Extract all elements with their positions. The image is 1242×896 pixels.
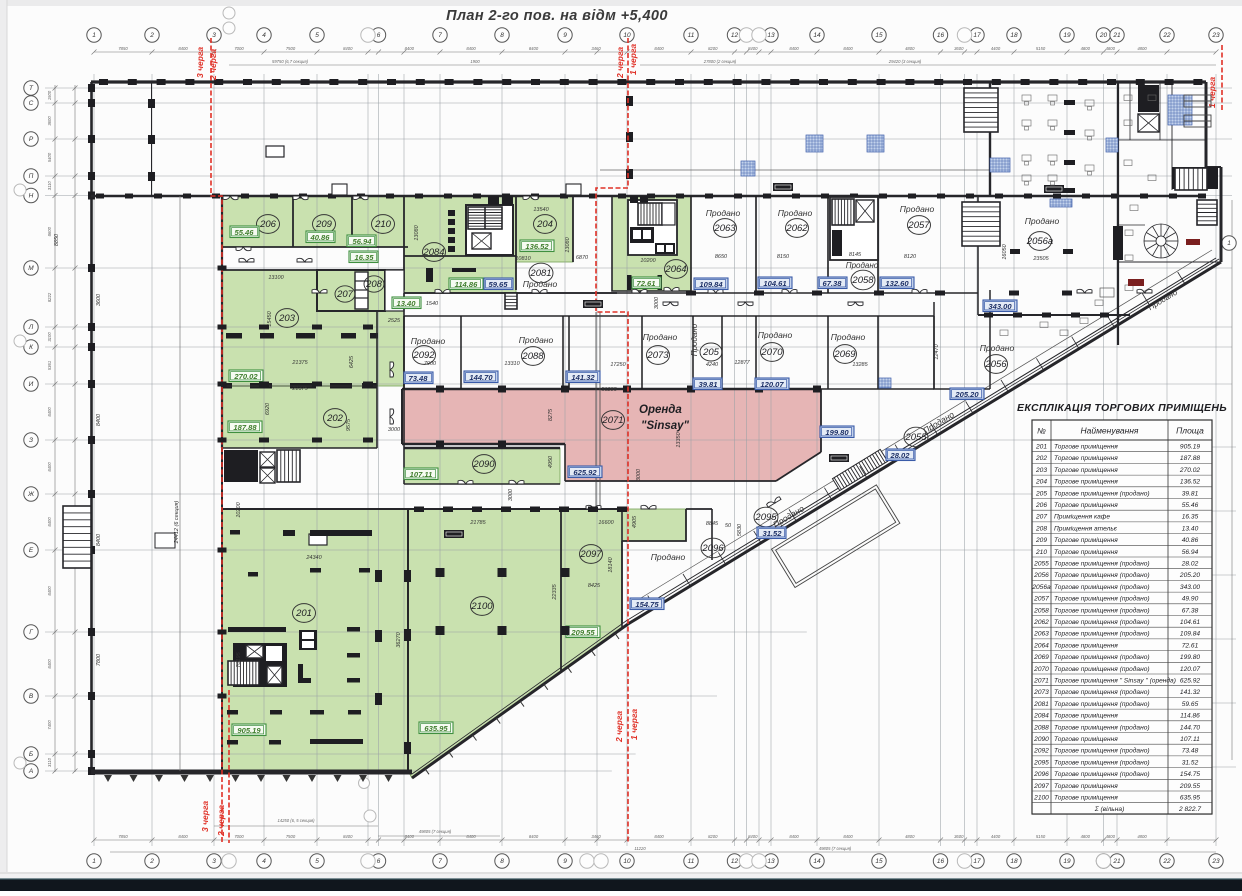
svg-text:12470: 12470	[934, 343, 940, 359]
svg-text:343.00: 343.00	[988, 302, 1012, 311]
svg-text:Продано: Продано	[690, 323, 699, 356]
svg-text:10: 10	[623, 858, 631, 865]
svg-text:12: 12	[731, 858, 739, 865]
svg-text:Торгове приміщення (продано): Торгове приміщення (продано)	[1054, 700, 1150, 708]
svg-text:5150: 5150	[1036, 46, 1046, 51]
svg-text:8145: 8145	[849, 252, 862, 258]
svg-text:2 черга: 2 черга	[208, 49, 218, 81]
svg-text:2064: 2064	[1033, 642, 1049, 649]
svg-text:4800: 4800	[1081, 834, 1091, 839]
svg-text:17: 17	[973, 32, 981, 39]
svg-text:8400: 8400	[789, 46, 799, 51]
svg-text:22: 22	[1162, 32, 1171, 39]
svg-text:13080: 13080	[414, 224, 420, 240]
svg-text:19: 19	[1063, 858, 1071, 865]
svg-text:4400: 4400	[991, 834, 1001, 839]
svg-text:4905: 4905	[632, 515, 638, 528]
svg-text:2084: 2084	[1033, 713, 1049, 720]
svg-text:132.60: 132.60	[885, 279, 909, 288]
svg-text:10810: 10810	[515, 256, 531, 262]
svg-text:7850: 7850	[118, 834, 128, 839]
svg-text:8400: 8400	[405, 834, 415, 839]
svg-text:120.07: 120.07	[760, 380, 784, 389]
svg-text:199.80: 199.80	[1180, 654, 1201, 661]
svg-text:В: В	[29, 693, 34, 700]
svg-text:18: 18	[1010, 858, 1018, 865]
svg-text:Торгове приміщення: Торгове приміщення	[1054, 501, 1118, 509]
svg-text:7500: 7500	[286, 46, 296, 51]
svg-text:2 черга: 2 черга	[614, 711, 624, 743]
svg-text:1: 1	[92, 858, 96, 865]
svg-text:144.70: 144.70	[1180, 724, 1201, 731]
svg-text:Торгове приміщення (продано): Торгове приміщення (продано)	[1054, 758, 1150, 766]
svg-text:11: 11	[688, 32, 695, 39]
svg-text:16.35: 16.35	[354, 253, 374, 262]
svg-text:8650: 8650	[715, 254, 728, 260]
svg-text:А: А	[28, 768, 33, 775]
svg-text:8400: 8400	[343, 834, 353, 839]
svg-text:12: 12	[731, 32, 739, 39]
svg-text:343.00: 343.00	[1180, 584, 1201, 591]
svg-text:6425: 6425	[349, 355, 355, 368]
svg-text:13.40: 13.40	[1182, 525, 1199, 532]
svg-text:2097: 2097	[579, 549, 602, 560]
svg-text:2071: 2071	[601, 415, 623, 426]
svg-text:4950: 4950	[548, 455, 554, 468]
svg-text:8600: 8600	[47, 226, 52, 236]
svg-text:7500: 7500	[286, 834, 296, 839]
svg-text:Р: Р	[29, 136, 34, 143]
svg-text:270.02: 270.02	[1179, 467, 1201, 474]
svg-text:8400: 8400	[843, 46, 853, 51]
svg-text:5150: 5150	[1036, 834, 1046, 839]
svg-text:29420 (3 секция): 29420 (3 секция)	[888, 59, 922, 64]
svg-text:1540: 1540	[426, 301, 439, 307]
svg-text:2055: 2055	[904, 432, 927, 443]
svg-text:8400: 8400	[466, 46, 476, 51]
svg-text:4800: 4800	[905, 46, 915, 51]
svg-text:204: 204	[536, 219, 553, 230]
svg-text:Торгове приміщення (продано): Торгове приміщення (продано)	[1054, 747, 1150, 755]
svg-text:Продано: Продано	[778, 208, 813, 218]
svg-text:2057: 2057	[1033, 596, 1049, 603]
svg-text:209.55: 209.55	[570, 628, 595, 637]
svg-text:21: 21	[1112, 858, 1121, 865]
svg-text:205.20: 205.20	[954, 390, 979, 399]
svg-text:10200: 10200	[236, 501, 242, 517]
svg-text:13.40: 13.40	[396, 299, 416, 308]
svg-text:Площа: Площа	[1176, 426, 1204, 436]
svg-text:207: 207	[1035, 514, 1047, 521]
svg-text:15: 15	[875, 32, 883, 39]
svg-text:73.48: 73.48	[1182, 748, 1199, 755]
svg-text:3000: 3000	[388, 427, 401, 433]
svg-text:Торгове приміщення: Торгове приміщення	[1054, 735, 1118, 743]
svg-text:3000: 3000	[654, 296, 660, 309]
svg-text:Г: Г	[29, 629, 33, 636]
svg-text:2071: 2071	[1033, 678, 1049, 685]
svg-text:Продано: Продано	[651, 552, 686, 562]
svg-text:План 2-го пов. на відм +5,400: План 2-го пов. на відм +5,400	[446, 8, 668, 24]
svg-text:Торгове приміщення " Sinsay ": Торгове приміщення " Sinsay " (оренда)	[1054, 677, 1176, 685]
svg-text:8200: 8200	[708, 834, 718, 839]
svg-text:2063: 2063	[713, 223, 736, 234]
svg-text:17: 17	[973, 858, 981, 865]
svg-text:154.75: 154.75	[635, 600, 659, 609]
svg-text:27800 (2 секция): 27800 (2 секция)	[703, 59, 737, 64]
svg-text:2: 2	[149, 858, 154, 865]
svg-text:8400: 8400	[47, 659, 52, 669]
svg-text:209: 209	[315, 219, 333, 230]
svg-text:270.02: 270.02	[233, 372, 258, 381]
svg-text:Торгове приміщення: Торгове приміщення	[1054, 443, 1118, 451]
svg-text:8222: 8222	[47, 292, 52, 302]
svg-text:201: 201	[295, 608, 312, 619]
svg-text:Продано: Продано	[1025, 216, 1060, 226]
svg-text:Торгове приміщення (продано): Торгове приміщення (продано)	[1054, 630, 1150, 638]
svg-text:109.84: 109.84	[699, 280, 723, 289]
svg-text:2064: 2064	[664, 264, 686, 275]
svg-text:17250: 17250	[610, 362, 626, 368]
svg-text:7: 7	[438, 32, 442, 39]
svg-text:154.75: 154.75	[1180, 771, 1201, 778]
svg-text:Торгове приміщення: Торгове приміщення	[1054, 536, 1118, 544]
svg-text:3100: 3100	[47, 332, 52, 342]
svg-text:2062: 2062	[1033, 619, 1049, 626]
svg-text:21: 21	[1112, 32, 1121, 39]
svg-text:210: 210	[1035, 549, 1047, 556]
svg-text:7000: 7000	[234, 834, 244, 839]
svg-text:3000: 3000	[508, 488, 514, 501]
svg-text:2: 2	[149, 32, 154, 39]
svg-text:8200: 8200	[708, 46, 718, 51]
svg-text:4240: 4240	[706, 362, 719, 368]
svg-text:1: 1	[1227, 240, 1231, 247]
svg-text:Торгове приміщення: Торгове приміщення	[1054, 454, 1118, 462]
svg-text:23505: 23505	[1032, 256, 1049, 262]
svg-text:16050: 16050	[1002, 243, 1008, 259]
svg-text:28.02: 28.02	[889, 451, 910, 460]
svg-text:Продано: Продано	[846, 261, 879, 270]
svg-text:7900: 7900	[424, 361, 437, 367]
svg-text:55.46: 55.46	[1182, 502, 1199, 509]
svg-text:14: 14	[813, 32, 821, 39]
svg-text:З: З	[29, 437, 33, 444]
svg-text:203: 203	[278, 313, 296, 324]
svg-text:Торгове приміщення (продано): Торгове приміщення (продано)	[1054, 571, 1150, 579]
svg-text:Л: Л	[28, 324, 34, 331]
svg-text:Найменування: Найменування	[1081, 426, 1139, 436]
svg-text:50: 50	[725, 523, 732, 529]
svg-text:11220: 11220	[634, 846, 646, 851]
svg-text:18140: 18140	[608, 556, 614, 572]
svg-text:Торгове приміщення: Торгове приміщення	[1054, 782, 1118, 790]
svg-text:3110: 3110	[47, 757, 52, 767]
svg-text:2070: 2070	[1033, 666, 1049, 673]
svg-text:21375: 21375	[291, 360, 308, 366]
svg-text:2100: 2100	[470, 601, 493, 612]
svg-text:8400: 8400	[47, 586, 52, 596]
svg-text:4800: 4800	[905, 834, 915, 839]
svg-text:8400: 8400	[96, 533, 102, 546]
svg-text:4: 4	[262, 858, 266, 865]
svg-text:203: 203	[1035, 467, 1047, 474]
svg-text:3600: 3600	[954, 46, 964, 51]
svg-text:2088: 2088	[1033, 724, 1049, 731]
svg-text:2062: 2062	[785, 223, 808, 234]
svg-text:205.20: 205.20	[1179, 572, 1201, 579]
svg-text:56.94: 56.94	[352, 237, 372, 246]
svg-text:2095: 2095	[1033, 759, 1049, 766]
svg-text:6: 6	[377, 32, 381, 39]
svg-text:2073: 2073	[646, 350, 669, 361]
svg-text:2073: 2073	[1033, 689, 1049, 696]
svg-text:204: 204	[1035, 479, 1047, 486]
svg-text:209.55: 209.55	[1179, 783, 1201, 790]
svg-text:635.95: 635.95	[424, 724, 448, 733]
svg-text:625.92: 625.92	[573, 468, 597, 477]
svg-text:13285: 13285	[852, 362, 868, 368]
svg-text:4800: 4800	[1081, 46, 1091, 51]
svg-text:36270: 36270	[396, 631, 402, 647]
svg-text:201: 201	[1035, 444, 1047, 451]
svg-text:209: 209	[1035, 537, 1047, 544]
svg-text:2092: 2092	[1033, 748, 1049, 755]
svg-text:Торгове приміщення (продано): Торгове приміщення (продано)	[1054, 688, 1150, 696]
svg-text:72.61: 72.61	[636, 279, 655, 288]
svg-text:П: П	[29, 173, 34, 180]
svg-text:Торгове приміщення: Торгове приміщення	[1054, 466, 1118, 474]
svg-text:208: 208	[1035, 525, 1047, 532]
svg-text:2058: 2058	[1033, 607, 1049, 614]
svg-text:24340: 24340	[305, 555, 322, 561]
svg-text:8400: 8400	[748, 46, 758, 51]
svg-text:31.52: 31.52	[1182, 759, 1199, 766]
svg-text:625.92: 625.92	[1180, 678, 1201, 685]
svg-text:3460: 3460	[591, 834, 601, 839]
svg-text:21375: 21375	[291, 386, 308, 392]
svg-text:141.32: 141.32	[1180, 689, 1201, 696]
svg-text:199.80: 199.80	[825, 428, 849, 437]
svg-text:2055: 2055	[1033, 561, 1049, 568]
svg-text:2081: 2081	[529, 268, 551, 279]
svg-text:7: 7	[438, 858, 442, 865]
svg-text:Продано: Продано	[980, 343, 1015, 353]
svg-text:56.94: 56.94	[1182, 549, 1199, 556]
svg-text:Торгове приміщення: Торгове приміщення	[1054, 794, 1118, 802]
svg-text:31.52: 31.52	[762, 529, 782, 538]
svg-text:Б: Б	[29, 751, 33, 758]
svg-text:Приміщення кафе: Приміщення кафе	[1054, 513, 1110, 521]
svg-text:13310: 13310	[504, 361, 520, 367]
svg-text:2 черга: 2 черга	[216, 805, 226, 837]
svg-text:202: 202	[326, 413, 344, 424]
svg-text:Торгове приміщення (продано): Торгове приміщення (продано)	[1054, 583, 1150, 591]
svg-text:5: 5	[315, 32, 319, 39]
svg-text:22335: 22335	[552, 583, 558, 600]
svg-text:2096: 2096	[701, 543, 724, 554]
svg-text:Е: Е	[29, 547, 34, 554]
svg-text:Продано: Продано	[519, 335, 554, 345]
svg-text:2056а: 2056а	[1031, 584, 1051, 591]
svg-text:2090: 2090	[1033, 736, 1049, 743]
svg-text:1 черга: 1 черга	[628, 44, 638, 75]
svg-text:Торгове приміщення: Торгове приміщення	[1054, 641, 1118, 649]
svg-text:55.46: 55.46	[234, 228, 254, 237]
svg-text:3 черга: 3 черга	[195, 47, 205, 78]
svg-text:8400: 8400	[47, 407, 52, 417]
svg-text:Приміщення ательє: Приміщення ательє	[1054, 524, 1118, 532]
svg-text:6870: 6870	[576, 255, 589, 261]
svg-text:20: 20	[1099, 32, 1108, 39]
svg-text:14: 14	[813, 858, 821, 865]
svg-text:16: 16	[937, 858, 945, 865]
svg-text:5361: 5361	[47, 361, 52, 370]
svg-text:Торгове приміщення (продано): Торгове приміщення (продано)	[1054, 770, 1150, 778]
svg-text:Торгове приміщення (продано): Торгове приміщення (продано)	[1054, 653, 1150, 661]
svg-text:56285: 56285	[601, 387, 617, 393]
svg-text:13: 13	[767, 858, 775, 865]
svg-text:5400: 5400	[47, 152, 52, 162]
svg-text:Торгове приміщення: Торгове приміщення	[1054, 478, 1118, 486]
svg-text:207: 207	[336, 289, 354, 300]
svg-text:8400: 8400	[529, 834, 539, 839]
svg-text:Продано: Продано	[831, 332, 866, 342]
svg-text:2070: 2070	[760, 347, 783, 358]
svg-text:104.61: 104.61	[763, 279, 786, 288]
svg-text:16: 16	[937, 32, 945, 39]
svg-text:67.38: 67.38	[1182, 607, 1199, 614]
svg-text:9: 9	[563, 32, 567, 39]
svg-text:Торгове приміщення: Торгове приміщення	[1054, 548, 1118, 556]
svg-text:6: 6	[377, 858, 381, 865]
svg-text:208: 208	[365, 279, 383, 290]
svg-text:15: 15	[875, 858, 883, 865]
svg-text:202: 202	[1035, 455, 1047, 462]
svg-text:"Sinsay": "Sinsay"	[641, 420, 690, 432]
svg-text:8850: 8850	[54, 233, 60, 246]
svg-text:7400: 7400	[47, 720, 52, 730]
svg-text:Продано: Продано	[523, 279, 558, 289]
svg-text:8845: 8845	[706, 521, 719, 527]
svg-text:120.07: 120.07	[1180, 666, 1201, 673]
svg-text:39.81: 39.81	[1182, 490, 1199, 497]
svg-text:Продано: Продано	[758, 330, 793, 340]
svg-text:206: 206	[259, 219, 277, 230]
svg-text:8400: 8400	[654, 46, 664, 51]
svg-text:Торгове приміщення (продано): Торгове приміщення (продано)	[1054, 489, 1150, 497]
svg-text:3600: 3600	[96, 293, 102, 306]
svg-text:1900: 1900	[470, 59, 480, 64]
svg-text:8400: 8400	[789, 834, 799, 839]
svg-text:Н: Н	[29, 193, 34, 200]
svg-text:21785: 21785	[469, 520, 486, 526]
svg-text:7850: 7850	[118, 46, 128, 51]
svg-text:39.81: 39.81	[698, 380, 717, 389]
svg-text:7800: 7800	[96, 653, 102, 666]
svg-text:3600: 3600	[954, 834, 964, 839]
svg-text:109.84: 109.84	[1180, 631, 1201, 638]
svg-text:Торгове приміщення: Торгове приміщення	[1054, 712, 1118, 720]
svg-text:Торгове приміщення (продано): Торгове приміщення (продано)	[1054, 595, 1150, 603]
svg-text:2097: 2097	[1033, 783, 1049, 790]
svg-text:2069: 2069	[833, 349, 856, 360]
svg-text:2058: 2058	[851, 275, 874, 286]
svg-text:1 черга: 1 черга	[1207, 77, 1217, 108]
svg-text:8400: 8400	[178, 834, 188, 839]
svg-text:16.35: 16.35	[1182, 514, 1199, 521]
svg-text:Оренда: Оренда	[639, 404, 682, 416]
svg-text:144.70: 144.70	[469, 373, 493, 382]
svg-text:И: И	[29, 381, 34, 388]
svg-text:59.65: 59.65	[1182, 701, 1199, 708]
svg-text:22: 22	[1162, 858, 1171, 865]
svg-text:28.02: 28.02	[1181, 561, 1199, 568]
svg-text:ЕКСПЛІКАЦІЯ ТОРГОВИХ ПРИМІЩЕНЬ: ЕКСПЛІКАЦІЯ ТОРГОВИХ ПРИМІЩЕНЬ	[1017, 402, 1227, 414]
svg-text:8400: 8400	[343, 46, 353, 51]
svg-text:Продано: Продано	[411, 336, 446, 346]
svg-text:10: 10	[623, 32, 631, 39]
svg-text:8400: 8400	[178, 46, 188, 51]
svg-text:Торгове приміщення (продано): Торгове приміщення (продано)	[1054, 560, 1150, 568]
svg-text:5830: 5830	[737, 523, 743, 536]
svg-text:4: 4	[262, 32, 266, 39]
svg-text:3: 3	[212, 858, 216, 865]
svg-text:6920: 6920	[265, 402, 271, 415]
svg-text:4800: 4800	[1137, 46, 1147, 51]
svg-text:8400: 8400	[47, 462, 52, 472]
svg-text:12877: 12877	[734, 360, 750, 366]
svg-text:2092: 2092	[412, 350, 435, 361]
svg-text:8400: 8400	[843, 834, 853, 839]
svg-text:8: 8	[500, 32, 504, 39]
svg-text:9575: 9575	[346, 418, 352, 431]
svg-text:Торгове приміщення (продано): Торгове приміщення (продано)	[1054, 606, 1150, 614]
svg-text:8400: 8400	[405, 46, 415, 51]
svg-text:49.90: 49.90	[1182, 596, 1199, 603]
svg-text:8400: 8400	[47, 517, 52, 527]
svg-text:8400: 8400	[654, 834, 664, 839]
svg-text:187.88: 187.88	[1180, 455, 1201, 462]
svg-text:107.11: 107.11	[1180, 736, 1200, 743]
svg-text:С: С	[29, 100, 34, 107]
svg-text:5: 5	[315, 858, 319, 865]
svg-text:2081: 2081	[1033, 701, 1049, 708]
svg-text:Продано: Продано	[643, 332, 678, 342]
svg-text:Торгове приміщення (продано): Торгове приміщення (продано)	[1054, 723, 1150, 731]
svg-text:2057: 2057	[907, 220, 930, 231]
svg-text:8120: 8120	[904, 254, 917, 260]
svg-text:206: 206	[1035, 502, 1047, 509]
svg-text:2525: 2525	[387, 318, 401, 324]
svg-text:1500: 1500	[47, 90, 52, 100]
svg-text:2 черга: 2 черга	[615, 47, 625, 79]
svg-text:73.48: 73.48	[408, 374, 428, 383]
svg-text:187.88: 187.88	[233, 423, 257, 432]
svg-text:18: 18	[1010, 32, 1018, 39]
svg-text:114.86: 114.86	[455, 280, 478, 289]
svg-text:23: 23	[1211, 858, 1220, 865]
svg-text:7000: 7000	[234, 46, 244, 51]
svg-text:№: №	[1037, 427, 1046, 436]
svg-text:14250 (6, 5 секция): 14250 (6, 5 секция)	[277, 818, 315, 823]
svg-text:3600: 3600	[47, 116, 52, 126]
svg-text:210: 210	[374, 219, 392, 230]
svg-text:905.19: 905.19	[237, 726, 261, 735]
svg-text:2056а: 2056а	[1026, 236, 1053, 247]
svg-text:72.61: 72.61	[1182, 642, 1199, 649]
svg-text:8400: 8400	[748, 834, 758, 839]
